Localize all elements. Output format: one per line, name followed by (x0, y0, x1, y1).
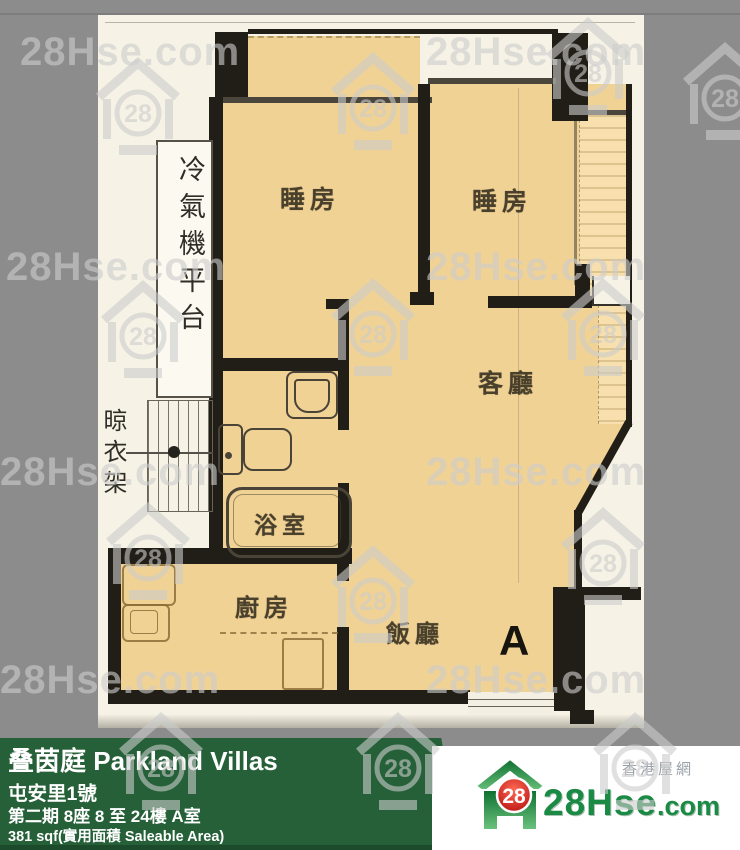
svg-text:28: 28 (384, 755, 412, 783)
watermark-text: 28Hse.com (0, 658, 220, 703)
watermark-house-icon: 28 (330, 50, 416, 156)
watermark-house-icon: 28 (560, 276, 646, 382)
bathroom-label: 浴室 (254, 506, 310, 540)
step-line (468, 706, 554, 707)
wash-basin (243, 428, 292, 471)
wall (428, 78, 556, 84)
svg-text:28: 28 (147, 755, 175, 783)
svg-text:28: 28 (621, 755, 649, 783)
svg-text:28: 28 (589, 550, 617, 578)
svg-text:28: 28 (711, 85, 739, 113)
living-room-label: 客廳 (478, 364, 538, 400)
floor-plan-page: 冷氣機平台 晾衣架 睡房 睡房 客廳 飯廳 廚房 浴室 A 28Hse.com … (0, 0, 740, 850)
watermark-text: 28Hse.com (426, 450, 646, 495)
svg-text:28: 28 (574, 60, 602, 88)
watermark-text: 28Hse.com (0, 450, 220, 495)
kitchen-label: 廚房 (235, 588, 293, 623)
watermark-house-icon: 28 (105, 500, 191, 606)
watermark-house-icon: 28 (118, 710, 204, 816)
toilet-bowl (294, 379, 330, 413)
watermark-text: 28Hse.com (426, 658, 646, 703)
watermark-house-icon: 28 (100, 278, 186, 384)
kitchen-cabinet (282, 638, 324, 690)
watermark-house-icon: 28 (560, 505, 646, 611)
svg-text:28: 28 (589, 321, 617, 349)
watermark-house-icon: 28 (545, 15, 631, 121)
svg-text:28: 28 (359, 321, 387, 349)
bedroom-1-label: 睡房 (280, 180, 340, 216)
kitchen-counter-line (220, 632, 338, 634)
basin-drain (225, 452, 232, 459)
svg-text:28: 28 (134, 545, 162, 573)
svg-text:28: 28 (124, 100, 152, 128)
saleable-area: 381 sqf(實用面積 Saleable Area) (8, 825, 224, 846)
watermark-house-icon: 28 (592, 710, 678, 816)
wall (209, 358, 345, 371)
watermark-house-icon: 28 (330, 543, 416, 649)
watermark-house-icon: 28 (682, 40, 740, 146)
bedroom-2-label: 睡房 (472, 182, 532, 218)
scan-crease-line (518, 88, 519, 583)
watermark-house-icon: 28 (330, 276, 416, 382)
basin-unit (218, 424, 243, 475)
wall (570, 710, 594, 724)
info-bar-shade (0, 845, 462, 850)
logo-number: 28 (502, 785, 526, 808)
svg-text:28: 28 (359, 588, 387, 616)
28hse-logo-house: 28 (475, 758, 545, 832)
watermark-house-icon: 28 (355, 710, 441, 816)
kitchen-stove-inner (130, 610, 158, 634)
svg-text:28: 28 (129, 323, 157, 351)
svg-text:28: 28 (359, 95, 387, 123)
watermark-house-icon: 28 (95, 55, 181, 161)
